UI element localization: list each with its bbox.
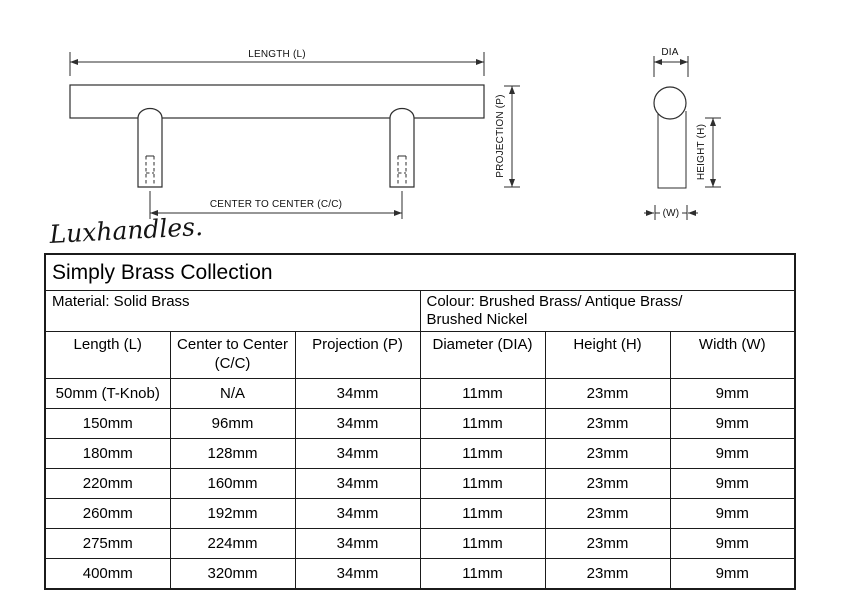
spec-cell: 34mm xyxy=(295,529,420,559)
spec-sheet-page: LENGTH (L) PROJECTION (P) xyxy=(0,0,842,595)
spec-cell: 9mm xyxy=(670,439,795,469)
spec-cell: 11mm xyxy=(420,499,545,529)
spec-cell: 275mm xyxy=(45,529,170,559)
spec-cell: 9mm xyxy=(670,529,795,559)
table-row: 400mm320mm34mm11mm23mm9mm xyxy=(45,559,795,590)
table-row: 50mm (T-Knob)N/A34mm11mm23mm9mm xyxy=(45,379,795,409)
length-dimension: LENGTH (L) xyxy=(70,49,484,76)
spec-cell: 34mm xyxy=(295,559,420,590)
table-row: 260mm192mm34mm11mm23mm9mm xyxy=(45,499,795,529)
col-header-diameter: Diameter (DIA) xyxy=(420,332,545,379)
width-label: (W) xyxy=(663,208,680,219)
spec-cell: 96mm xyxy=(170,409,295,439)
spec-cell: 23mm xyxy=(545,529,670,559)
collection-title: Simply Brass Collection xyxy=(45,254,795,291)
height-label: HEIGHT (H) xyxy=(696,124,707,180)
spec-cell: 34mm xyxy=(295,409,420,439)
spec-table-body: 50mm (T-Knob)N/A34mm11mm23mm9mm150mm96mm… xyxy=(45,379,795,590)
spec-cell: 34mm xyxy=(295,499,420,529)
col-header-length: Length (L) xyxy=(45,332,170,379)
spec-cell: 23mm xyxy=(545,439,670,469)
col-header-projection: Projection (P) xyxy=(295,332,420,379)
col-header-width: Width (W) xyxy=(670,332,795,379)
right-post-shape xyxy=(390,109,414,188)
spec-cell: 23mm xyxy=(545,409,670,439)
table-meta-row: Material: Solid Brass Colour: Brushed Br… xyxy=(45,291,795,332)
spec-cell: 9mm xyxy=(670,559,795,590)
spec-cell: 150mm xyxy=(45,409,170,439)
spec-cell: N/A xyxy=(170,379,295,409)
spec-cell: 400mm xyxy=(45,559,170,590)
width-dimension: (W) xyxy=(644,205,698,220)
spec-cell: 192mm xyxy=(170,499,295,529)
length-label: LENGTH (L) xyxy=(248,49,306,60)
colour-cell: Colour: Brushed Brass/ Antique Brass/ Br… xyxy=(420,291,795,332)
spec-cell: 50mm (T-Knob) xyxy=(45,379,170,409)
spec-cell: 11mm xyxy=(420,439,545,469)
table-title-row: Simply Brass Collection xyxy=(45,254,795,291)
spec-cell: 23mm xyxy=(545,469,670,499)
spec-cell: 9mm xyxy=(670,379,795,409)
end-view-post-shape xyxy=(658,111,686,188)
spec-cell: 180mm xyxy=(45,439,170,469)
spec-cell: 9mm xyxy=(670,409,795,439)
material-cell: Material: Solid Brass xyxy=(45,291,420,332)
end-view-knob-shape xyxy=(654,87,686,119)
spec-cell: 128mm xyxy=(170,439,295,469)
table-row: 220mm160mm34mm11mm23mm9mm xyxy=(45,469,795,499)
technical-drawing: LENGTH (L) PROJECTION (P) xyxy=(0,0,842,253)
projection-label: PROJECTION (P) xyxy=(495,94,506,177)
spec-cell: 34mm xyxy=(295,439,420,469)
spec-table: Simply Brass Collection Material: Solid … xyxy=(44,253,796,590)
col-header-center-to-center: Center to Center (C/C) xyxy=(170,332,295,379)
spec-cell: 224mm xyxy=(170,529,295,559)
spec-cell: 23mm xyxy=(545,499,670,529)
dia-label: DIA xyxy=(661,47,678,58)
table-header-row: Length (L) Center to Center (C/C) Projec… xyxy=(45,332,795,379)
height-dimension: HEIGHT (H) xyxy=(696,118,721,187)
spec-cell: 260mm xyxy=(45,499,170,529)
spec-cell: 23mm xyxy=(545,379,670,409)
spec-cell: 11mm xyxy=(420,529,545,559)
table-row: 275mm224mm34mm11mm23mm9mm xyxy=(45,529,795,559)
spec-cell: 220mm xyxy=(45,469,170,499)
spec-cell: 11mm xyxy=(420,559,545,590)
handle-end-view: DIA HEIGHT (H) xyxy=(644,47,721,220)
table-row: 180mm128mm34mm11mm23mm9mm xyxy=(45,439,795,469)
spec-cell: 9mm xyxy=(670,469,795,499)
spec-cell: 11mm xyxy=(420,469,545,499)
handle-bar-shape xyxy=(70,85,484,118)
spec-cell: 9mm xyxy=(670,499,795,529)
spec-cell: 160mm xyxy=(170,469,295,499)
left-post-shape xyxy=(138,109,162,188)
brand-signature: Luxhandles. xyxy=(48,212,204,249)
spec-cell: 34mm xyxy=(295,469,420,499)
dia-dimension: DIA xyxy=(654,47,688,77)
handle-side-view: LENGTH (L) PROJECTION (P) xyxy=(70,49,520,219)
col-header-height: Height (H) xyxy=(545,332,670,379)
projection-dimension: PROJECTION (P) xyxy=(495,86,520,187)
table-row: 150mm96mm34mm11mm23mm9mm xyxy=(45,409,795,439)
spec-cell: 320mm xyxy=(170,559,295,590)
spec-cell: 11mm xyxy=(420,379,545,409)
spec-cell: 11mm xyxy=(420,409,545,439)
spec-cell: 34mm xyxy=(295,379,420,409)
center-to-center-label: CENTER TO CENTER (C/C) xyxy=(210,199,342,210)
spec-cell: 23mm xyxy=(545,559,670,590)
